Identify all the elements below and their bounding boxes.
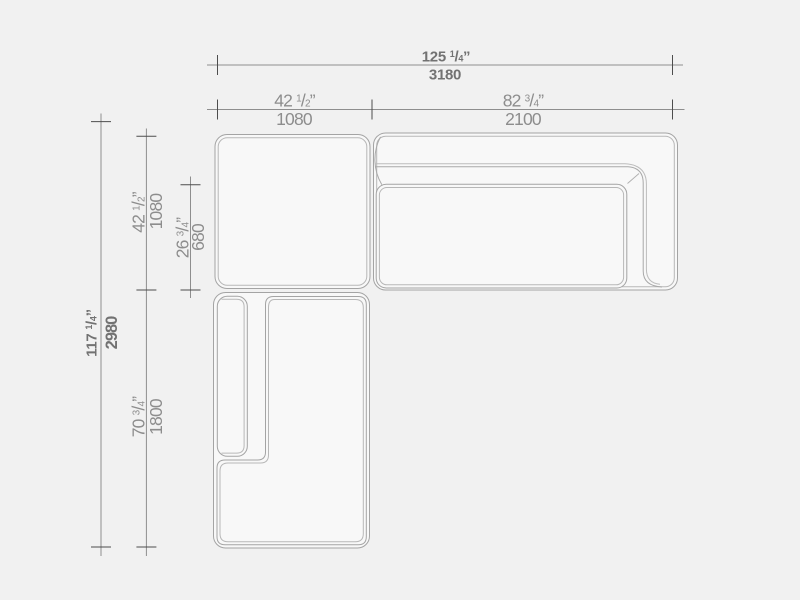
- svg-text:2100: 2100: [505, 109, 542, 129]
- svg-text:680: 680: [188, 223, 208, 251]
- svg-text:125 1/4”: 125 1/4”: [422, 49, 471, 66]
- svg-text:3180: 3180: [429, 67, 461, 84]
- svg-text:2980: 2980: [103, 316, 121, 350]
- svg-text:117 1/4”: 117 1/4”: [84, 309, 101, 357]
- svg-text:82 3/4”: 82 3/4”: [503, 91, 545, 111]
- svg-text:42 1/2”: 42 1/2”: [274, 91, 316, 111]
- svg-text:1080: 1080: [276, 109, 313, 129]
- svg-text:1800: 1800: [146, 398, 166, 435]
- svg-text:1080: 1080: [146, 193, 166, 230]
